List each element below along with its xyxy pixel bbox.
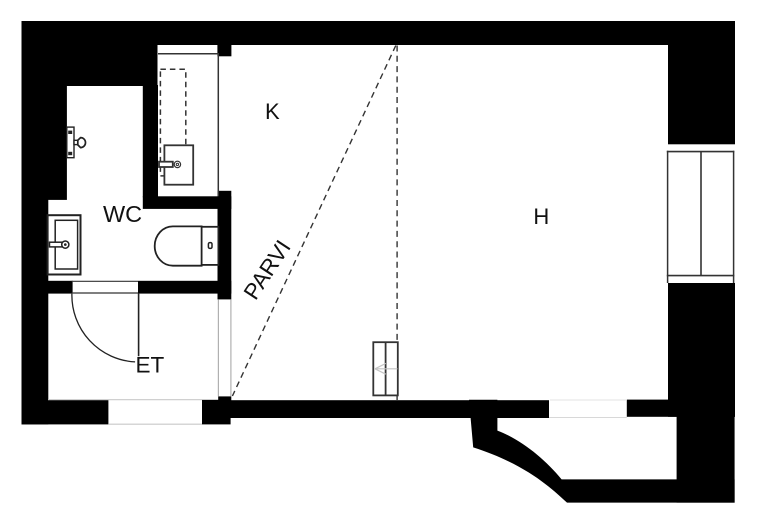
svg-text:WC: WC [103,201,142,227]
svg-text:H: H [533,204,549,229]
svg-text:K: K [265,99,280,124]
svg-text:ET: ET [136,353,165,378]
